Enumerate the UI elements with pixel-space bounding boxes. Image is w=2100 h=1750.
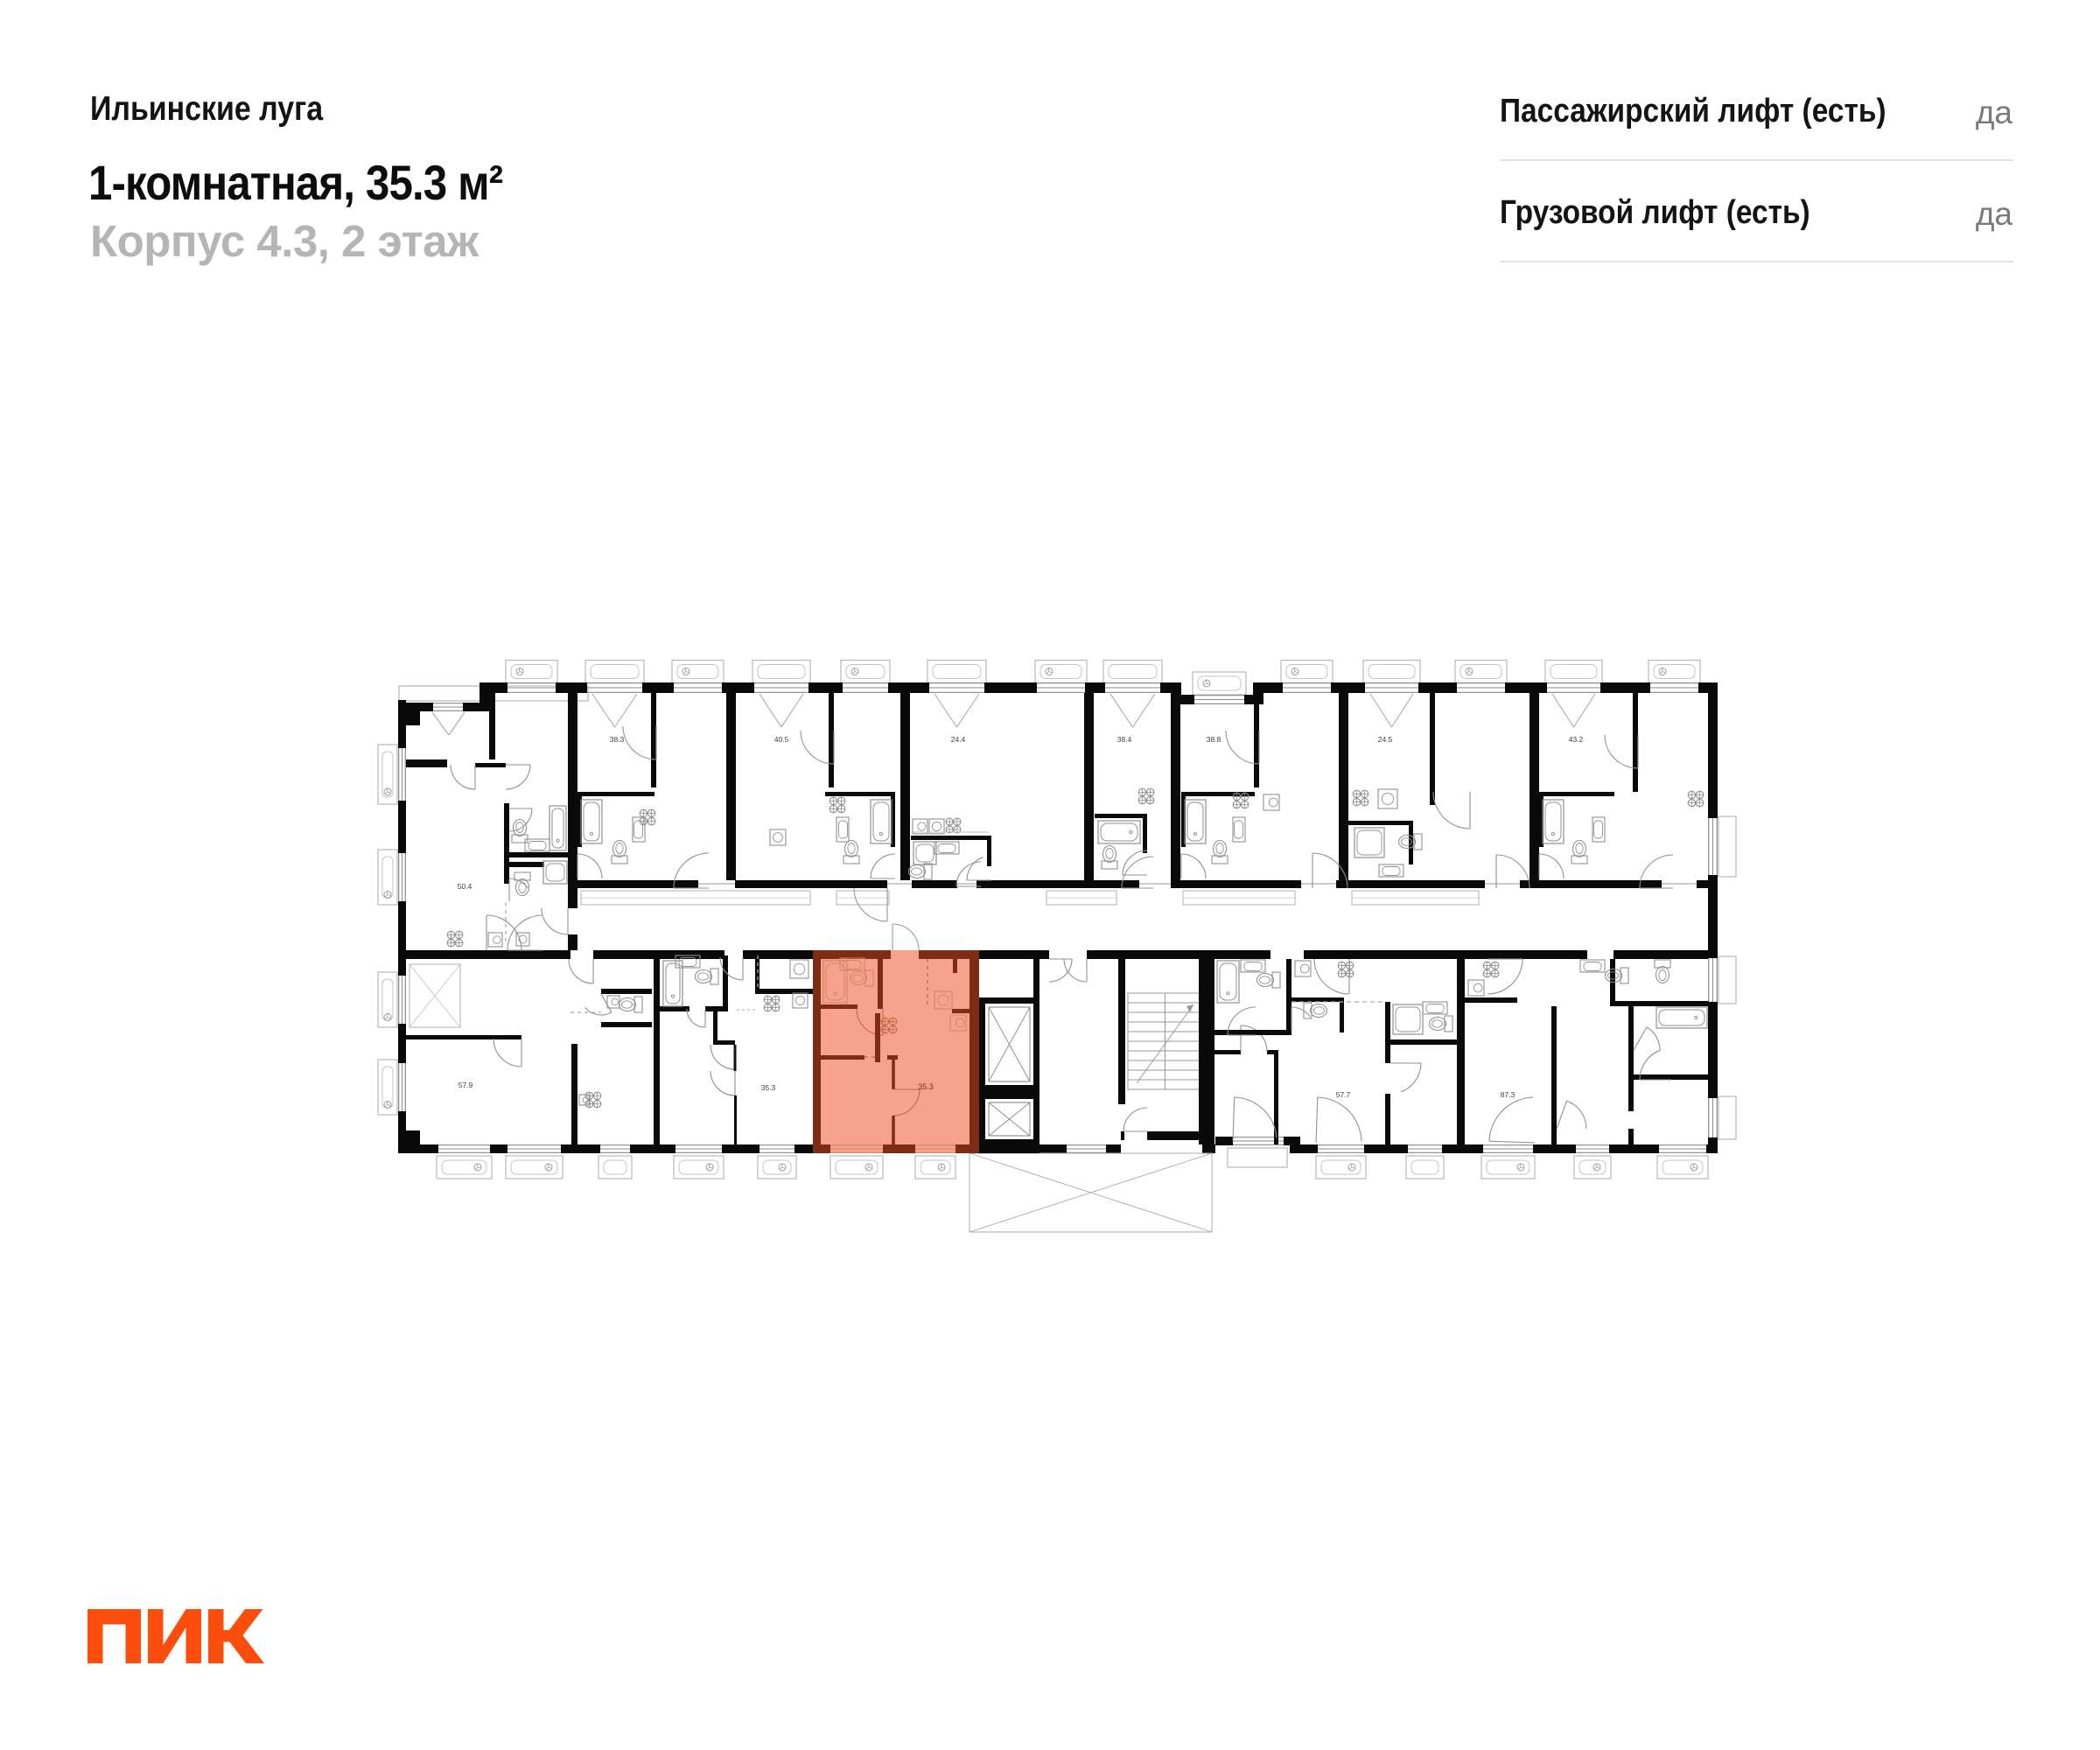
svg-text:50.4: 50.4 [458,882,472,891]
svg-text:35.3: 35.3 [761,1083,776,1092]
svg-text:87.3: 87.3 [1501,1090,1515,1099]
svg-text:40.5: 40.5 [774,735,789,744]
svg-text:38.8: 38.8 [1207,735,1221,744]
svg-text:57.7: 57.7 [1336,1090,1351,1099]
svg-text:57.9: 57.9 [458,1081,473,1089]
svg-text:43.2: 43.2 [1569,735,1584,744]
svg-text:35.3: 35.3 [918,1082,934,1091]
svg-text:38.3: 38.3 [610,735,625,744]
svg-text:24.5: 24.5 [1378,735,1393,744]
svg-text:38.4: 38.4 [1117,735,1132,744]
svg-text:24.4: 24.4 [951,735,966,744]
